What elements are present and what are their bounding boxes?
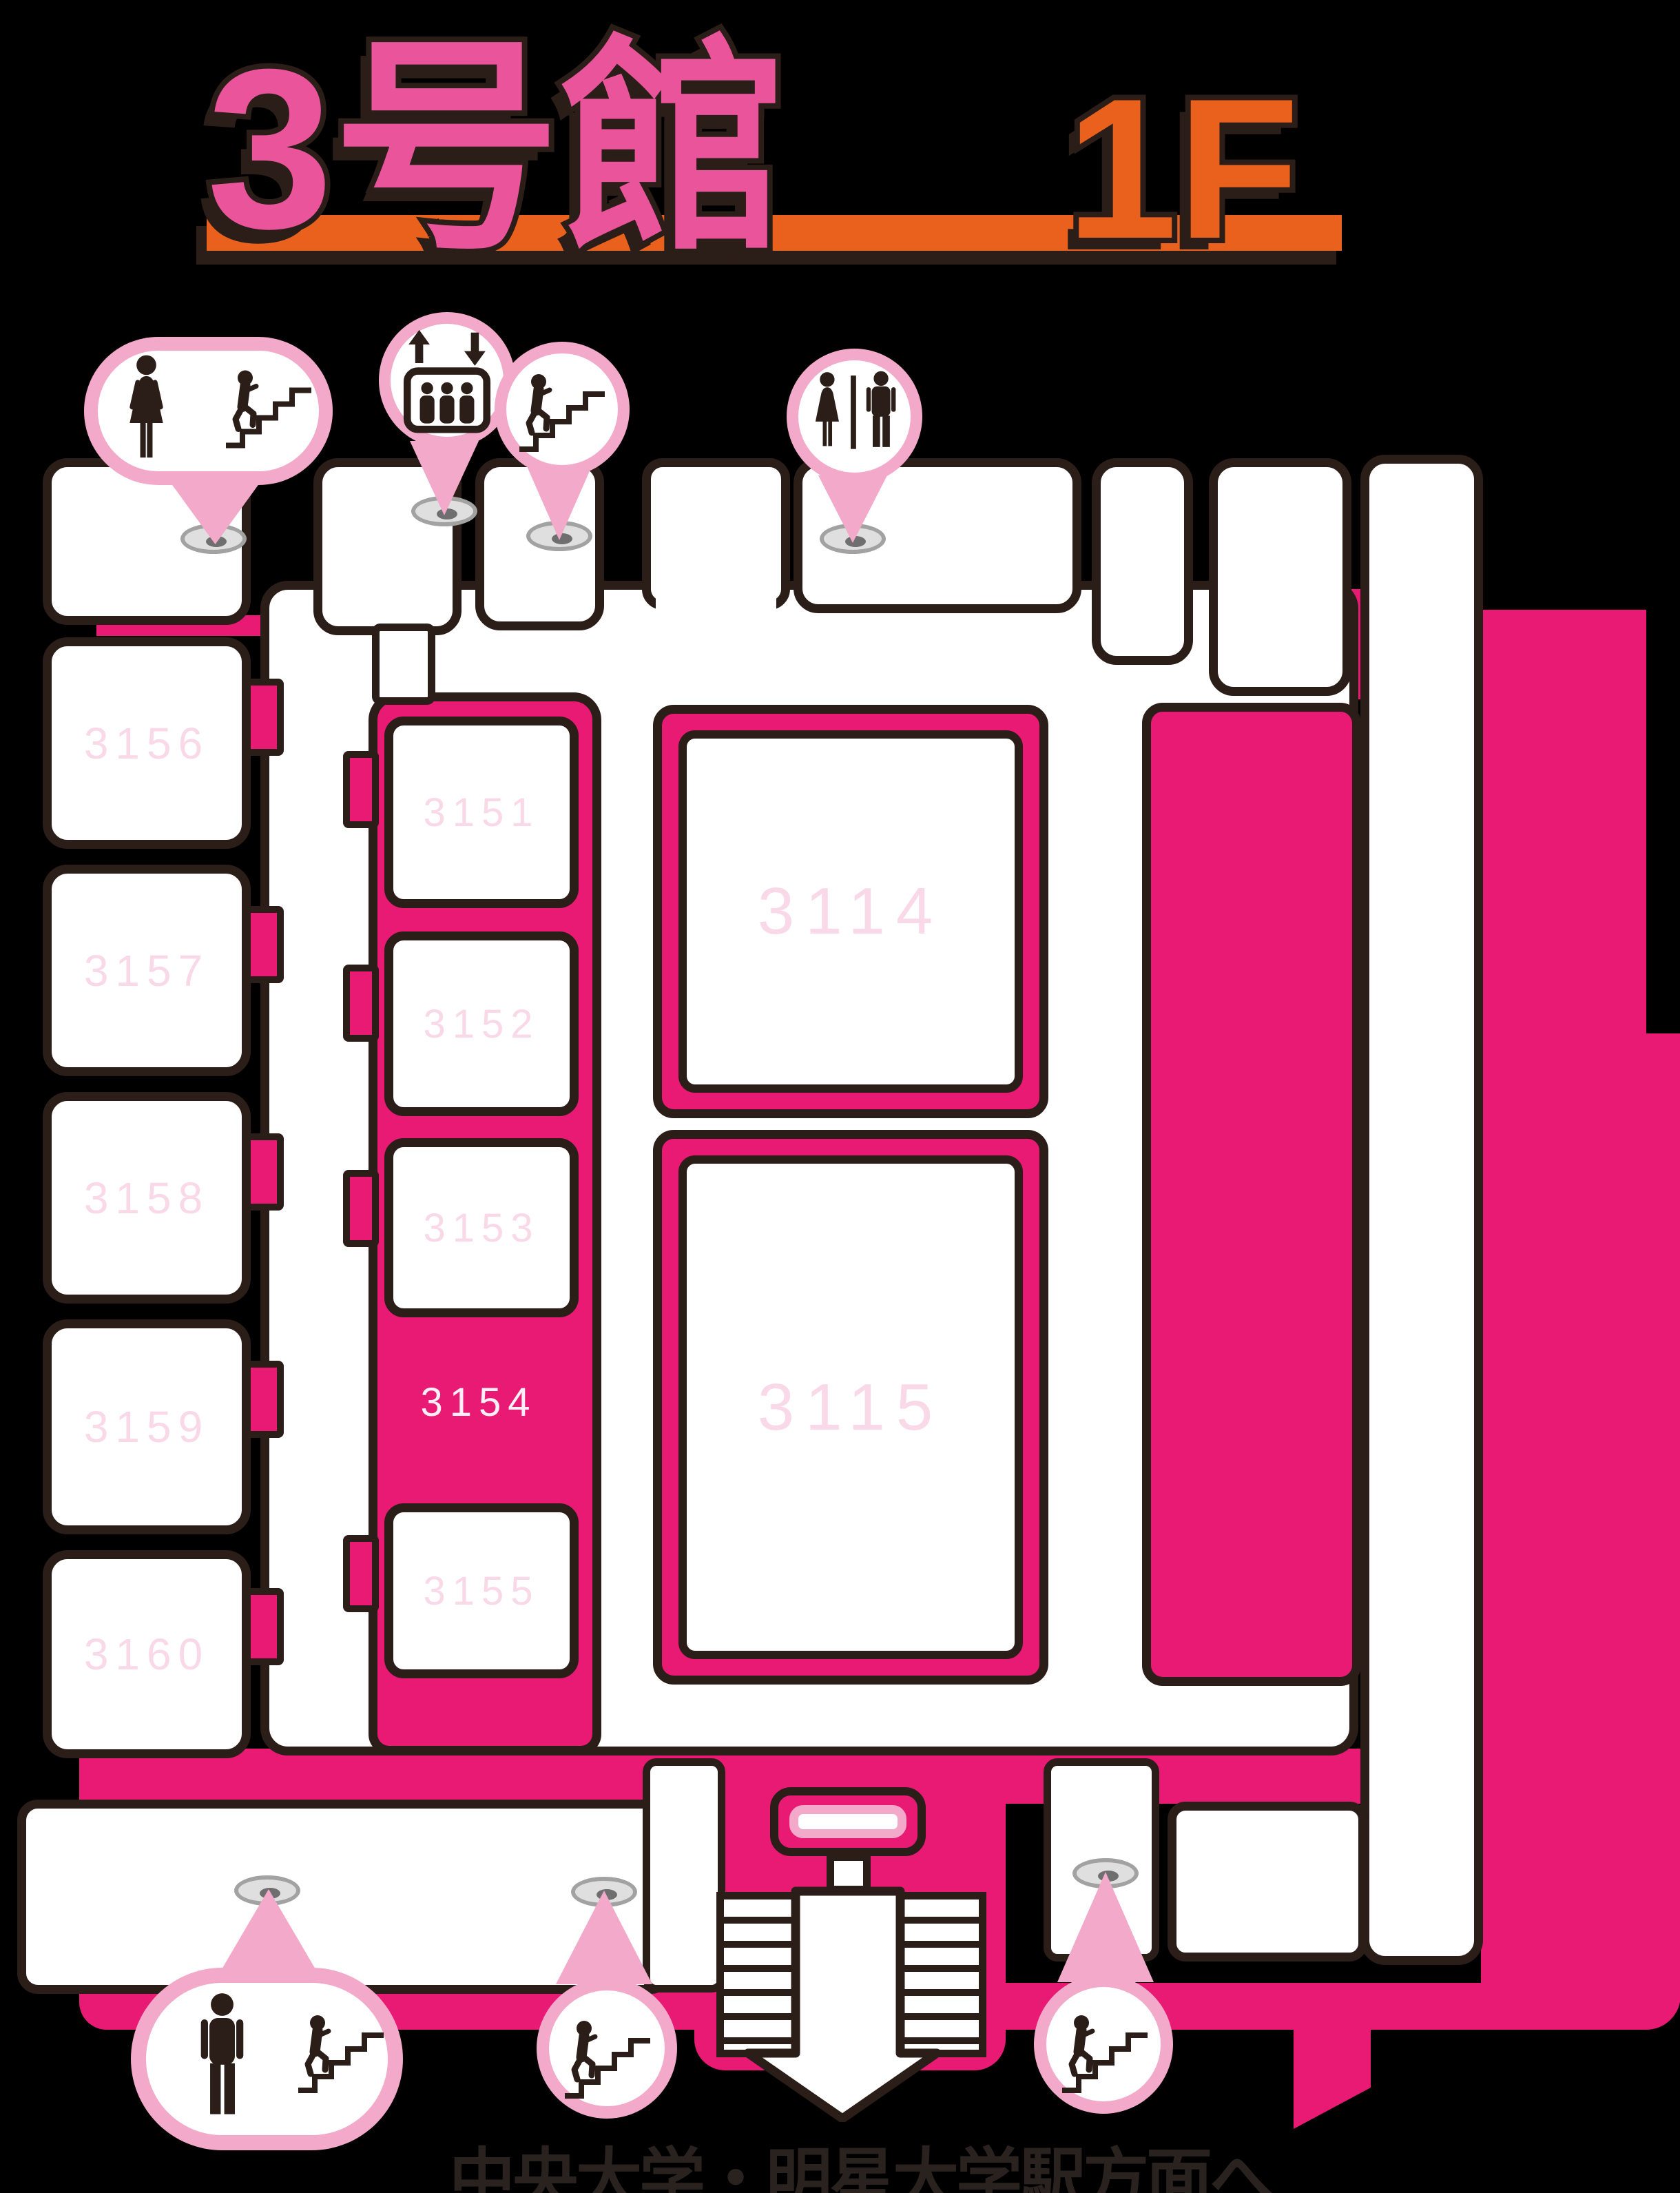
title-building-name: 3号館 xyxy=(207,21,788,276)
room-3154-zone: 3154 xyxy=(375,1347,582,1457)
room-label: 3154 xyxy=(420,1379,537,1425)
right-corridor-column xyxy=(1360,455,1483,1965)
stairs-icon xyxy=(220,365,317,451)
room-bottom-right xyxy=(1168,1802,1367,1962)
exit-arrow-icon xyxy=(743,1860,953,2122)
room-3115-inner: 3115 xyxy=(678,1155,1023,1659)
door-3151 xyxy=(343,751,379,828)
title-floor-label: 1F xyxy=(1066,57,1299,280)
room-label: 3158 xyxy=(84,1173,209,1224)
exit-corridor-left xyxy=(643,1758,725,1993)
man-icon xyxy=(189,1991,255,2125)
woman-icon xyxy=(117,353,176,470)
room-label: 3160 xyxy=(84,1629,209,1680)
room-label: 3152 xyxy=(423,1001,539,1047)
room-label: 3114 xyxy=(758,874,944,949)
room-3156: 3156 xyxy=(43,637,251,849)
right-branch-lower xyxy=(1481,1033,1680,2029)
door-3152 xyxy=(343,965,379,1042)
room-top-right-2 xyxy=(1209,458,1351,696)
stairs-icon xyxy=(559,2017,656,2100)
seam-patch xyxy=(656,590,776,621)
room-3157: 3157 xyxy=(43,865,251,1076)
room-top-right-1 xyxy=(1092,458,1193,665)
restroom-icon xyxy=(802,371,906,464)
room-3160: 3160 xyxy=(43,1550,251,1758)
room-label: 3157 xyxy=(84,945,209,996)
elevator-shaft-connector xyxy=(372,624,435,705)
stairs-icon xyxy=(511,371,613,453)
room-label: 3156 xyxy=(84,718,209,769)
stairs-icon xyxy=(1057,2012,1153,2094)
door-3155 xyxy=(343,1535,379,1612)
door-3153 xyxy=(343,1170,379,1247)
room-3114-inner: 3114 xyxy=(678,730,1023,1093)
page-title: 3号館 3号館 1F 1F xyxy=(0,7,1584,282)
entrance-pole xyxy=(827,1853,871,1893)
right-branch-upper xyxy=(1481,610,1646,1092)
floor-map-3goukan-1f: 3156 3157 3158 3159 3160 3151 3152 3153 … xyxy=(0,0,1680,2193)
exit-ramp-stub xyxy=(1294,2026,1371,2129)
room-3155: 3155 xyxy=(384,1503,579,1678)
stairs-icon xyxy=(293,2008,389,2098)
entrance-canopy-inner xyxy=(789,1805,906,1838)
corridor-stub-top xyxy=(642,458,790,610)
room-label: 3151 xyxy=(423,790,539,836)
room-3159: 3159 xyxy=(43,1319,251,1534)
room-3114: 3114 xyxy=(653,705,1048,1118)
room-3153: 3153 xyxy=(384,1138,579,1317)
room-label: 3159 xyxy=(84,1401,209,1452)
room-3151: 3151 xyxy=(384,717,579,908)
direction-note: 中央大学・明星大学駅方面へ xyxy=(427,2125,1295,2193)
room-label: 3153 xyxy=(423,1205,539,1251)
room-3152: 3152 xyxy=(384,931,579,1116)
closed-block-right xyxy=(1142,703,1361,1686)
elevator-icon xyxy=(394,327,500,433)
room-label: 3155 xyxy=(423,1568,539,1614)
room-3158: 3158 xyxy=(43,1092,251,1304)
room-label: 3115 xyxy=(758,1370,944,1445)
room-3115: 3115 xyxy=(653,1130,1048,1685)
